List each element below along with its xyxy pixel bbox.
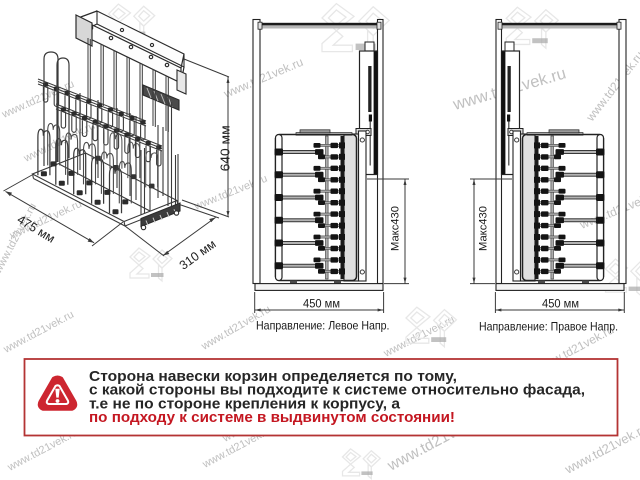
svg-text:640 мм: 640 мм [219,125,233,171]
svg-text:Направление: Левое Напр.: Направление: Левое Напр. [256,319,390,333]
svg-text:www.td21vek.ru: www.td21vek.ru [381,314,457,360]
svg-text:310 мм: 310 мм [177,237,219,273]
svg-text:Макс430: Макс430 [390,206,402,251]
svg-text:Макс430: Макс430 [478,206,490,251]
svg-text:www.td21vek.ru: www.td21vek.ru [1,309,76,357]
svg-text:www.td21vek.ru: www.td21vek.ru [0,201,39,276]
svg-text:Направление: Правое Напр.: Направление: Правое Напр. [479,320,618,334]
svg-text:по подходу к системе в выдвину: по подходу к системе в выдвинутом состоя… [89,410,455,426]
svg-text:450 мм: 450 мм [542,297,579,311]
svg-text:www.td21vek.ru: www.td21vek.ru [577,187,640,232]
svg-text:450 мм: 450 мм [303,297,340,311]
svg-text:www.td21vek.ru: www.td21vek.ru [221,55,305,101]
svg-text:www.td21vek.ru: www.td21vek.ru [583,48,640,124]
